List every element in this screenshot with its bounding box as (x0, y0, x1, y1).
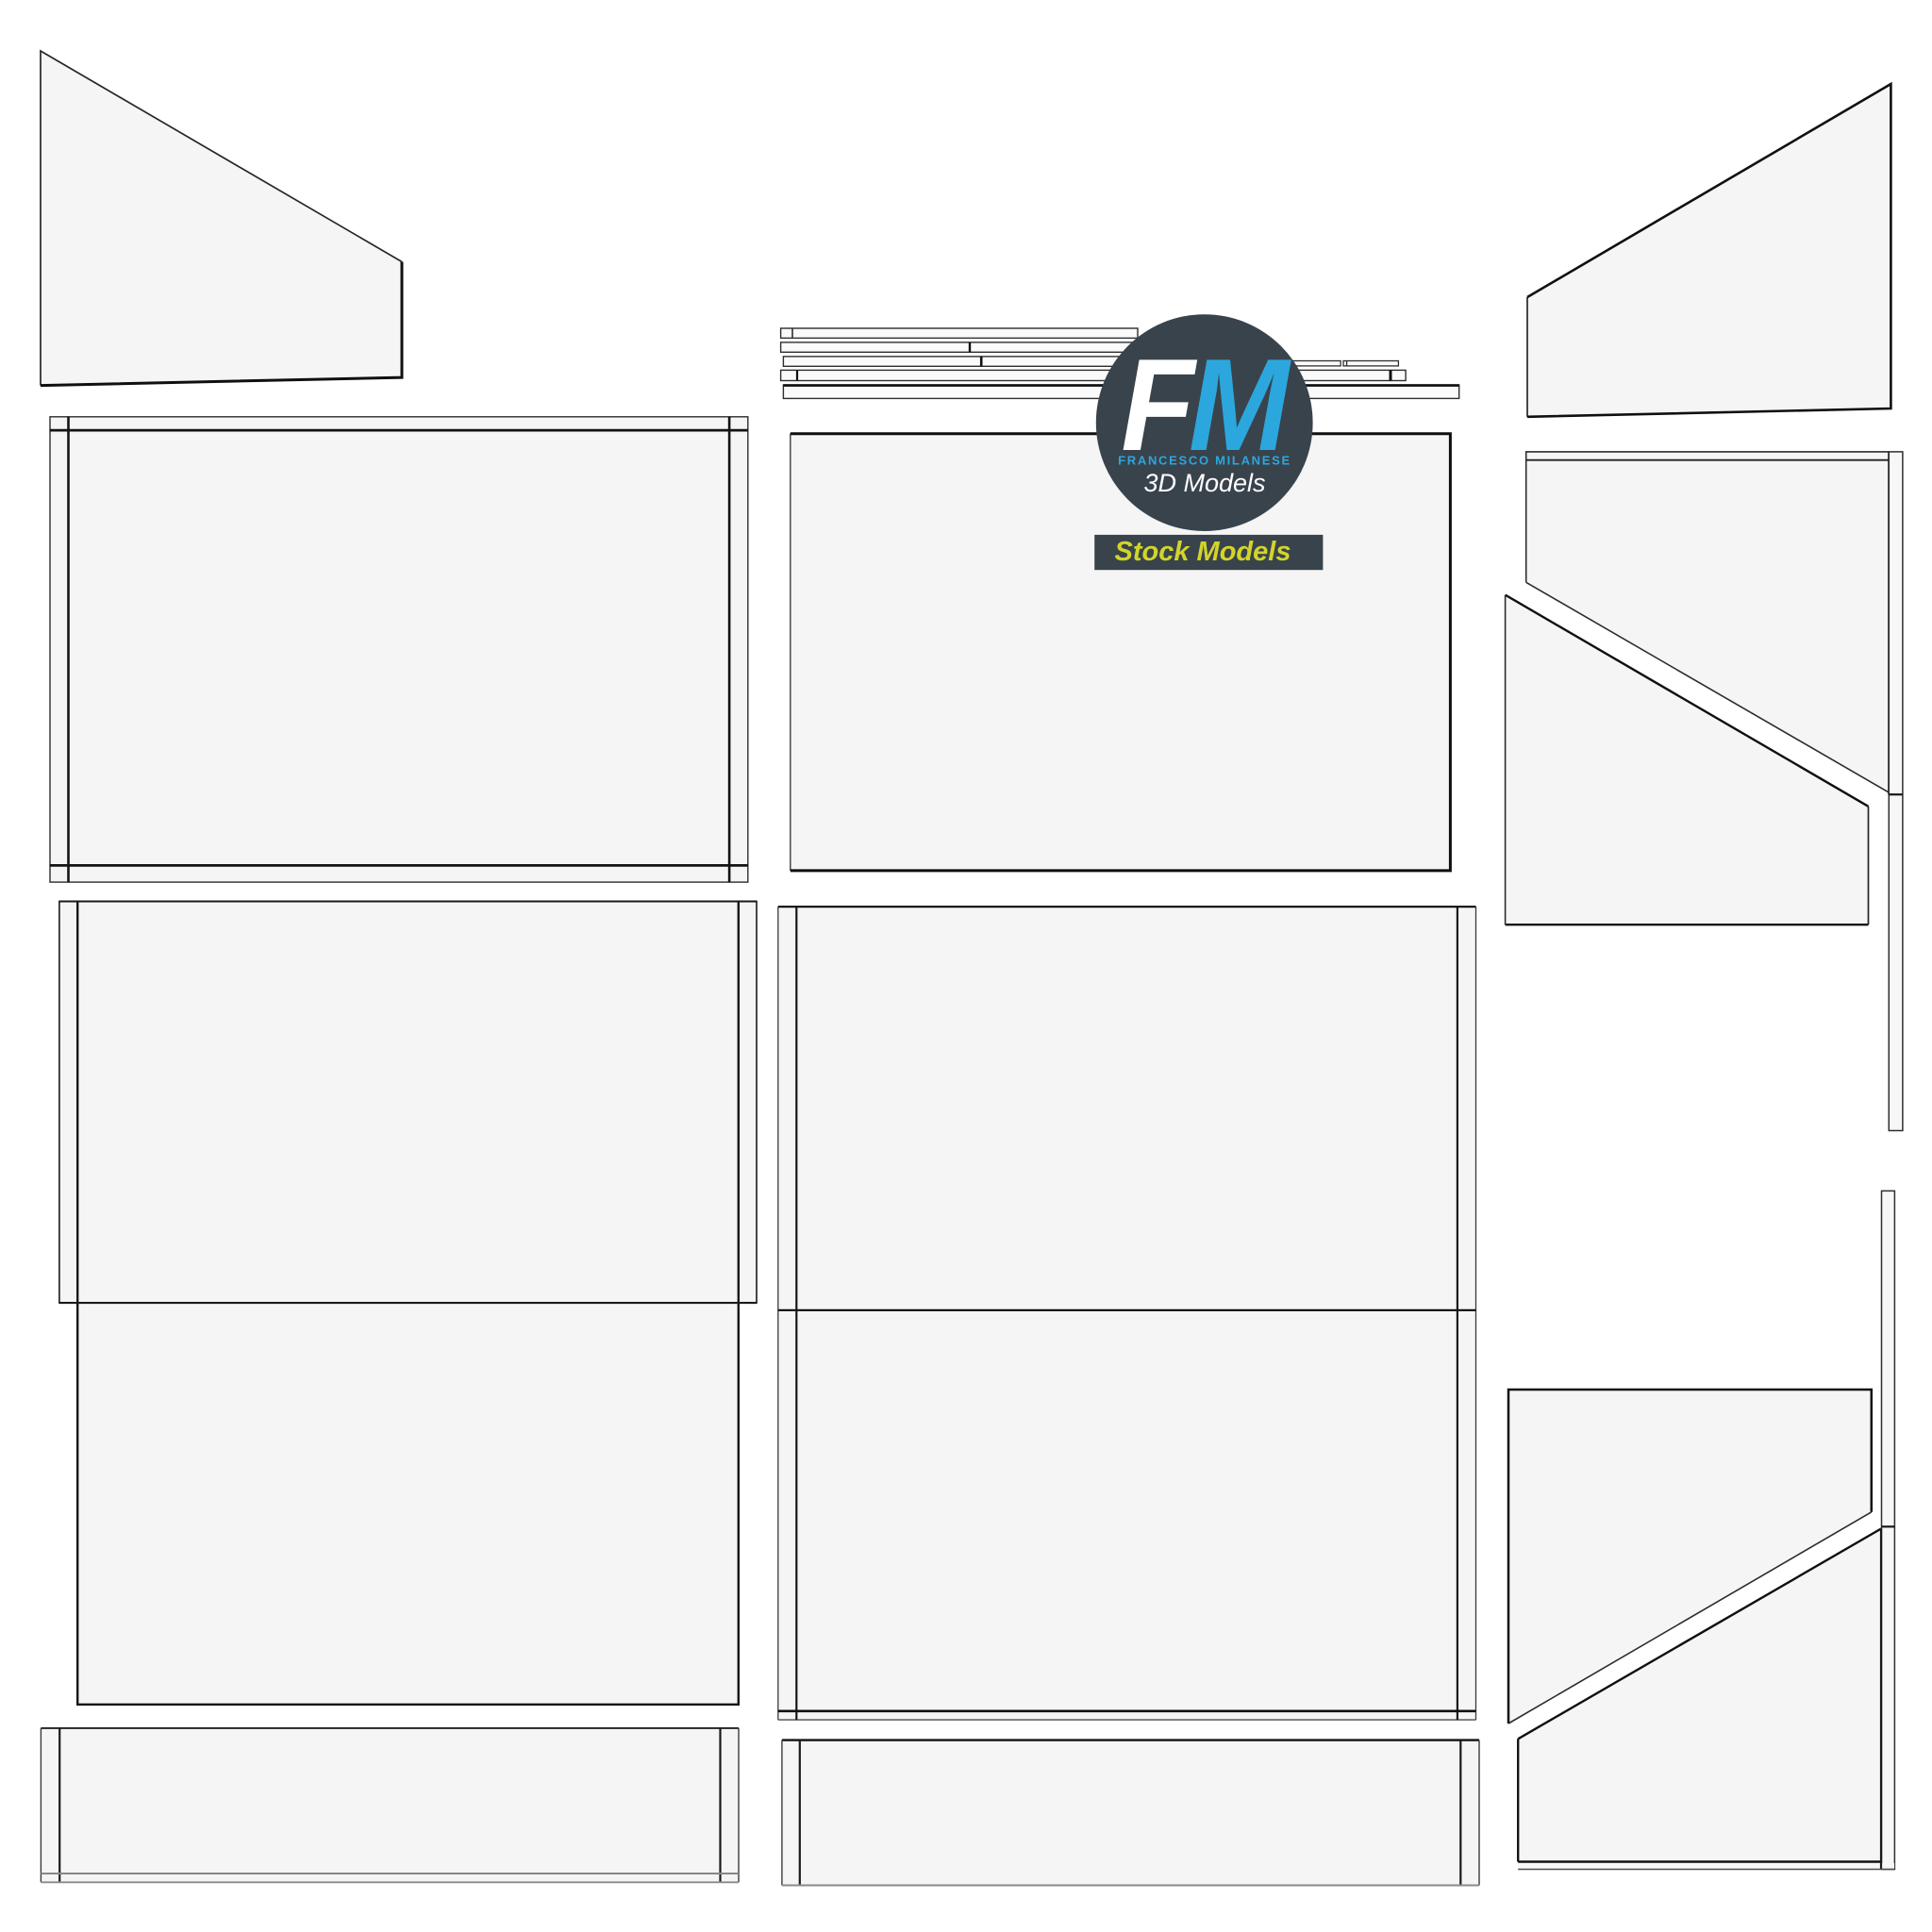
svg-text:FRANCESCO MILANESE: FRANCESCO MILANESE (1118, 454, 1291, 468)
svg-text:3D Models: 3D Models (1143, 469, 1265, 497)
svg-text:Stock Models: Stock Models (1115, 537, 1291, 567)
